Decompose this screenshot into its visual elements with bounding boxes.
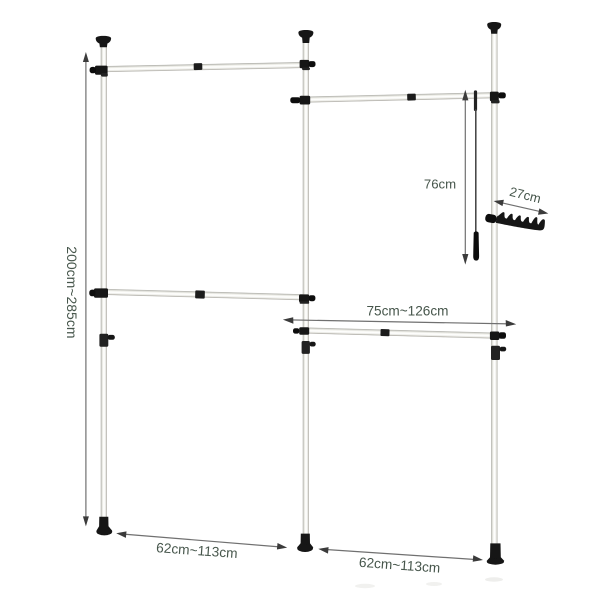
svg-text:200cm~285cm: 200cm~285cm [64, 246, 80, 338]
svg-text:75cm~126cm: 75cm~126cm [367, 304, 449, 319]
svg-text:76cm: 76cm [424, 176, 456, 191]
